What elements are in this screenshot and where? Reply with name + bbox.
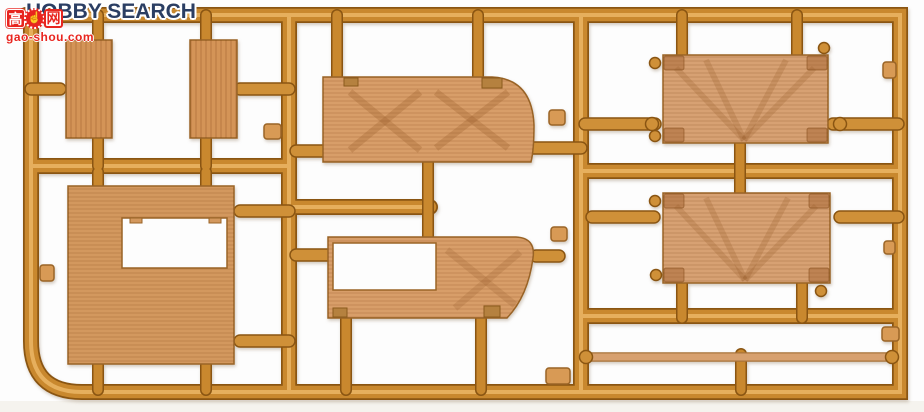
sprue-photo [0,0,924,412]
thumbs-up-icon: ☝ [24,8,45,29]
part-bed-side-panel-bottom [650,193,831,297]
watermark-char-gao: 高 [6,9,25,28]
part-long-rod [580,351,899,364]
product-photo: HOBBY SEARCH 高 ☝ 网 gao-shou.com [0,0,924,412]
part-plank-panel-1 [66,40,112,138]
part-bed-side-panel-top [650,43,830,144]
part-plank-panel-2 [190,40,237,138]
gao-shou-watermark: 高 ☝ 网 gao-shou.com [6,8,94,44]
watermark-char-wang: 网 [44,9,63,28]
watermark-site-url: gao-shou.com [6,30,94,44]
part-curved-side-panel-top [323,77,534,162]
part-cab-rear-panel-with-window [68,186,234,364]
part-curved-side-panel-bottom-with-window [328,237,533,318]
